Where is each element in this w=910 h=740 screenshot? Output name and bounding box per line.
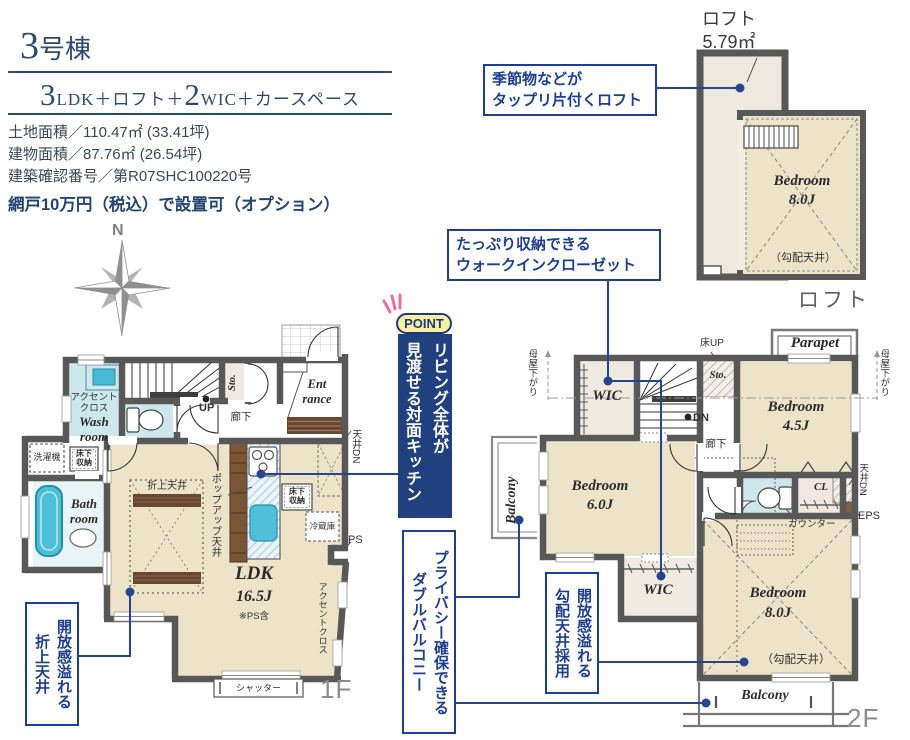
label-hallway-1f: 廊下 [228, 411, 254, 423]
callout-oriage-ceiling: 開放感溢れる 折上天井 [25, 602, 79, 726]
label-bedroom-6: Bedroom 6.0J [562, 477, 638, 515]
label-shutter: シャッター [214, 683, 303, 694]
loft-floor-label: ロフト [798, 284, 870, 314]
label-floor-up: 床UP [694, 338, 730, 350]
building-number: 3号棟 [20, 24, 91, 68]
label-ps-note: ※PS含 [234, 611, 274, 622]
label-storage-1f: Sto. [227, 364, 239, 402]
label-ps: PS [348, 534, 372, 547]
label-accent-cloth-ldk: アクセントクロス [317, 578, 328, 658]
point-badge: POINT [396, 313, 452, 334]
callout-loft: 季節物などが タップリ片付くロフト [483, 64, 657, 116]
loft-bedroom-label: Bedroom 8.0J [763, 172, 841, 210]
callout-wic: たっぷり収納できる ウォークインクローゼット [447, 229, 661, 281]
option-note: 網戸10万円（税込）で設置可（オプション） [8, 191, 340, 215]
label-moya-left: 母屋下がり [526, 342, 537, 404]
point-banner: リビング全体が 見渡せる対面キッチン [398, 334, 452, 518]
label-stairs-dn: DN [693, 412, 719, 425]
compass-north-label: N [112, 222, 124, 241]
label-balcony-left: Balcony [504, 450, 521, 550]
label-storage-2f: Sto. [703, 370, 733, 382]
floor1-label: 1F [320, 674, 352, 705]
callout-double-balcony: プライバシー確保できる ダブルバルコニー [402, 530, 456, 734]
label-wic-bottom: WIC [636, 582, 680, 600]
loft-plan [700, 53, 863, 277]
label-bedroom-8: Bedroom 8.0J [738, 583, 818, 623]
sparkle-icon [384, 295, 400, 312]
floor2-label: 2F [847, 703, 879, 734]
label-underfloor-storage-kitchen: 床下 収納 [283, 487, 311, 506]
label-moya-right: 母屋下がり [878, 342, 889, 404]
label-accent-cloth-wash: アクセント クロス [66, 392, 122, 414]
label-bedroom-45: Bedroom 4.5J [756, 398, 836, 436]
label-oriage-ceiling: 折上天井 [139, 481, 195, 493]
label-washroom: Wash room [68, 414, 120, 445]
label-ceiling-dn-2f: 天井DN [857, 453, 868, 505]
label-balcony-bottom: Balcony [730, 688, 800, 705]
label-bathroom: Bath room [62, 496, 106, 527]
plan-summary: 3LDK＋ロフト＋2WIC＋カースペース [8, 77, 392, 113]
label-closet: CL [808, 481, 834, 494]
label-hallway-2f: 廊下 [702, 438, 730, 450]
label-entrance: Ent rance [295, 377, 339, 407]
loft-area-label: ロフト 5.79㎡ [690, 8, 768, 54]
header-rule-top [8, 71, 392, 73]
label-ceiling-dn-1f: 天井DN [349, 421, 361, 471]
flyer-page: 3号棟 3LDK＋ロフト＋2WIC＋カースペース 土地面積／110.47㎡ (3… [0, 0, 910, 740]
label-fridge: 冷蔵庫 [306, 521, 339, 531]
header-rule-bottom [8, 113, 392, 115]
label-counter: カウンター [788, 519, 840, 530]
label-popup-ceiling: ポップアップ天井 [210, 466, 222, 564]
callout-sloped-ceiling: 開放感溢れる 勾配天井採用 [545, 572, 599, 694]
label-laundry: 洗濯機 [30, 452, 64, 463]
label-slope-note-2f: （勾配天井） [758, 654, 834, 668]
label-parapet: Parapet [780, 335, 850, 353]
label-ldk-size: 16.5J [230, 588, 278, 607]
label-underfloor-storage-wash: 床下 収納 [70, 449, 98, 468]
label-ldk: LDK [230, 563, 278, 585]
label-wic-top: WIC [585, 388, 629, 406]
property-specs: 土地面積／110.47㎡ (33.41坪) 建物面積／87.76㎡ (26.54… [8, 122, 252, 188]
label-eps: EPS [858, 510, 888, 523]
compass-rose-icon [74, 240, 170, 336]
loft-slope-note: （勾配天井） [768, 252, 838, 265]
label-stairs-up: UP [199, 402, 225, 415]
